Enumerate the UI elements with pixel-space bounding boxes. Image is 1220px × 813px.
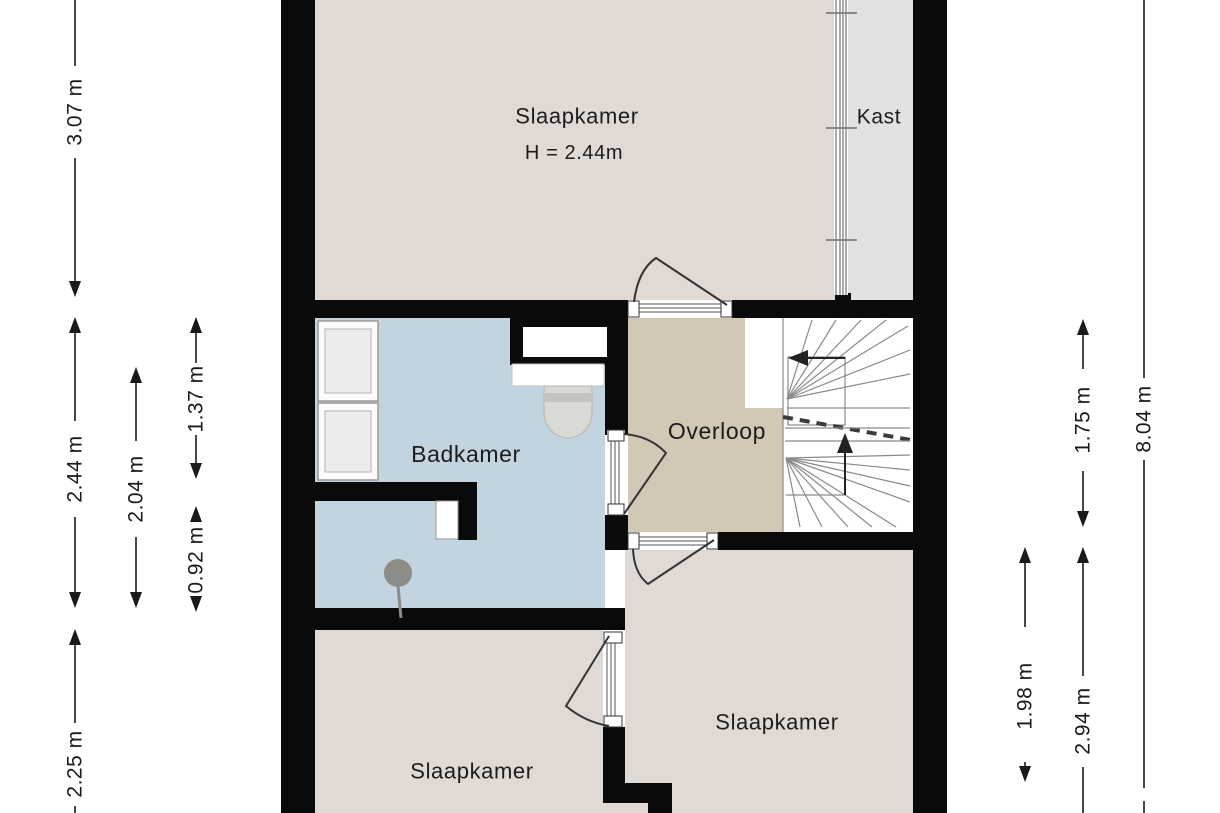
dimension-0-92: 0.92 m [185,506,208,612]
dimension-1-75: 1.75 m [1072,319,1095,527]
toilet-niche-inset [523,327,607,357]
dimension-1-37: 1.37 m [185,317,208,479]
dimension-label: 8.04 m [1133,385,1156,452]
wall-outer-right [913,0,947,813]
wall-top-bedroom-left [281,300,628,318]
wall-jog-vertical [648,803,672,813]
dimension-label: 2.25 m [64,730,87,797]
dimension-1-98: 1.98 m [1014,547,1037,782]
dimension-label: 2.04 m [125,455,148,522]
wall-bathroom-right-upper [605,318,628,435]
dimension-2-04: 2.04 m [125,367,148,608]
dimension-label: 2.94 m [1072,687,1095,754]
wall-outer-left [281,0,315,813]
door-frame-bathroom [607,430,625,515]
dimension-8-04: 8.04 m [1133,0,1156,813]
dimension-label: 1.37 m [185,365,208,432]
label-top-bedroom: Slaapkamer [515,104,638,129]
dimension-2-44: 2.44 m [64,317,87,608]
dimensions-right: 1.75 m 8.04 m 1.98 m 2.94 m [1014,0,1156,813]
floorplan-canvas: Slaapkamer H = 2.44m Kast Badkamer Overl… [0,0,1220,813]
washbasin-icon [318,321,378,401]
room-closet [848,0,913,302]
dimension-2-25: 2.25 m [64,629,87,813]
wall-mid-stub [603,608,625,630]
washbasin-icon [318,403,378,480]
room-left-bedroom [315,630,603,813]
label-closet: Kast [857,106,901,129]
door-frame-left-bedroom [603,632,623,727]
wall-shower-horizontal [313,482,477,501]
dimension-label: 0.92 m [185,526,208,593]
stair-void [745,318,783,408]
label-bathroom: Badkamer [411,441,521,467]
wall-landing-bottom-right [718,532,913,550]
dimensions-left: 3.07 m 2.44 m 2.04 m 1.37 m 0.92 m [64,0,208,813]
room-left-bedroom-notch [603,803,648,813]
label-right-bedroom: Slaapkamer [715,710,838,735]
wall-bathroom-right-lower [605,515,628,550]
dimension-3-07: 3.07 m [64,0,87,297]
dimension-label: 1.75 m [1072,386,1095,453]
room-landing-upper [628,318,745,410]
dimension-label: 2.44 m [64,435,87,502]
door-frame-top-bedroom [628,300,732,318]
label-ceiling-height: H = 2.44m [525,142,623,164]
wall-mid-vertical [603,727,625,787]
label-left-bedroom: Slaapkamer [410,759,533,784]
floorplan-svg: Slaapkamer H = 2.44m Kast Badkamer Overl… [0,0,1220,813]
wall-top-bedroom-right [732,300,913,318]
dimension-2-94: 2.94 m [1072,547,1095,813]
wall-bathroom-bottom [281,608,603,630]
dimension-label: 1.98 m [1014,662,1037,729]
wall-jog-horizontal [603,783,672,803]
label-landing: Overloop [668,418,766,444]
dimension-label: 3.07 m [64,78,87,145]
wall-shower-vertical [458,501,477,540]
room-right-bedroom [625,550,913,813]
shower-door-panel [436,501,458,539]
